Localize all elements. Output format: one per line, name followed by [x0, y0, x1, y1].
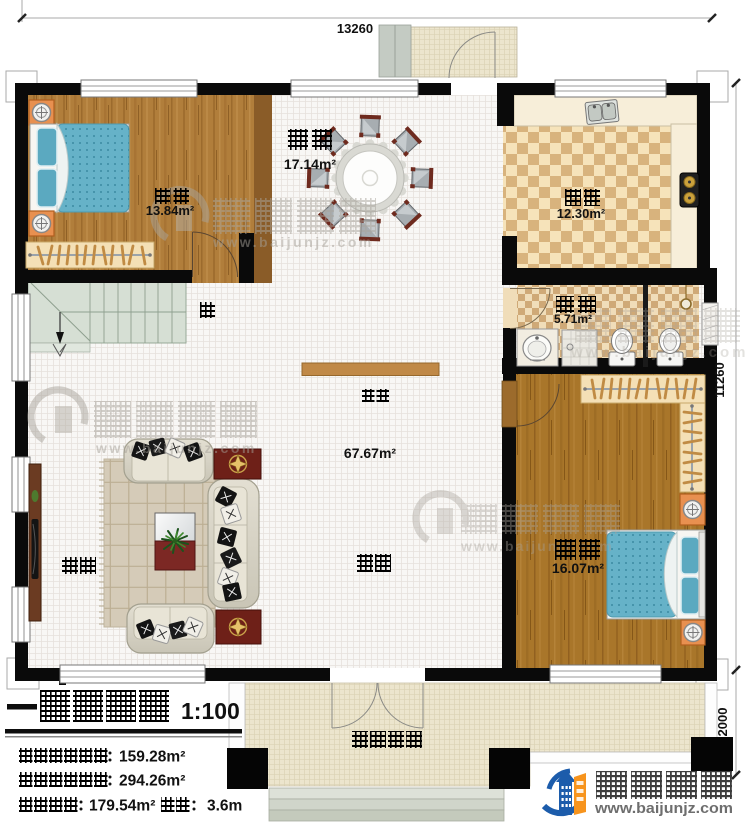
svg-text:12.30m²: 12.30m²	[557, 206, 606, 221]
svg-text:179.54m²: 179.54m²	[89, 798, 155, 815]
svg-text:2000: 2000	[715, 708, 730, 737]
svg-text:www.baijunjz.com: www.baijunjz.com	[95, 440, 257, 456]
svg-text:67.67m²: 67.67m²	[344, 445, 396, 461]
svg-text:www.baijunjz.com: www.baijunjz.com	[570, 344, 748, 361]
svg-text:13.84m²: 13.84m²	[146, 203, 195, 218]
svg-text:1:100: 1:100	[181, 698, 240, 724]
svg-text:5.71m²: 5.71m²	[554, 312, 592, 326]
svg-text:11260: 11260	[712, 362, 727, 397]
svg-text:159.28m²: 159.28m²	[119, 749, 185, 766]
svg-text:www.baijunjz.com: www.baijunjz.com	[594, 800, 733, 817]
svg-text:www.baijunjz.com: www.baijunjz.com	[212, 234, 374, 250]
svg-text:13260: 13260	[337, 21, 373, 36]
svg-text:16.07m²: 16.07m²	[552, 560, 604, 576]
svg-text:3.6m: 3.6m	[207, 798, 242, 815]
svg-text:17.14m²: 17.14m²	[284, 156, 336, 172]
svg-text:294.26m²: 294.26m²	[119, 773, 185, 790]
